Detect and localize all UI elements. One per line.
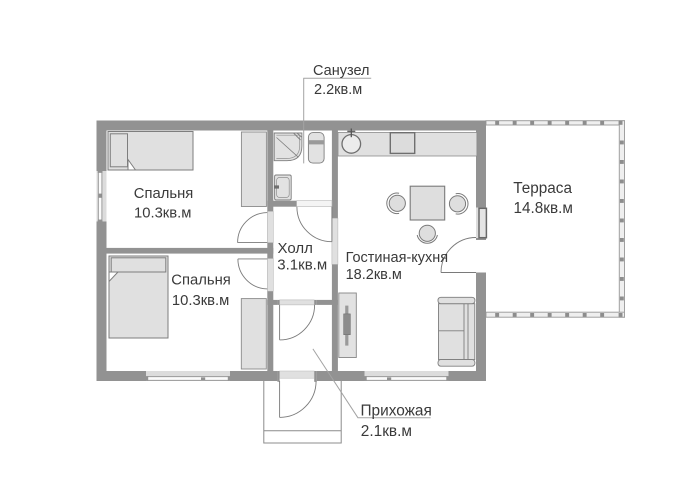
svg-text:Гостиная-кухня: Гостиная-кухня [346, 250, 449, 266]
svg-text:Терраса: Терраса [513, 180, 572, 197]
svg-text:Холл: Холл [278, 240, 313, 257]
svg-text:10.3кв.м: 10.3кв.м [172, 293, 229, 309]
svg-text:Спальня: Спальня [134, 186, 193, 202]
svg-text:Спальня: Спальня [171, 273, 230, 289]
svg-text:10.3кв.м: 10.3кв.м [134, 206, 191, 222]
svg-text:18.2кв.м: 18.2кв.м [346, 267, 402, 283]
svg-text:2.1кв.м: 2.1кв.м [361, 423, 412, 440]
svg-text:Прихожая: Прихожая [361, 403, 432, 420]
svg-text:14.8кв.м: 14.8кв.м [514, 200, 573, 217]
svg-text:3.1кв.м: 3.1кв.м [277, 256, 327, 273]
svg-text:Санузел: Санузел [313, 63, 370, 79]
svg-text:2.2кв.м: 2.2кв.м [314, 82, 362, 98]
